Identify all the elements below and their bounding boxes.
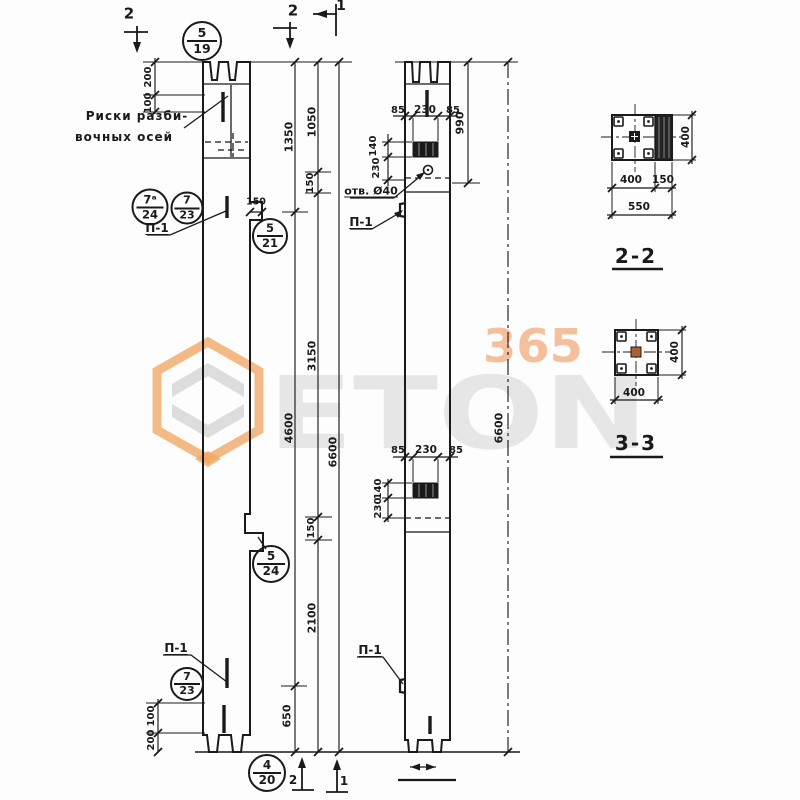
dim-230-bot: 230 <box>415 445 437 456</box>
sec22-dim-150: 150 <box>652 175 674 186</box>
hole-40-center <box>427 169 429 171</box>
dim-200-bottom: 200 <box>147 730 157 751</box>
dim-100-bottom: 100 <box>147 706 157 727</box>
p1-bot-mid-leader <box>357 657 403 684</box>
cut-label-2-bottom: 2 <box>289 774 297 786</box>
feet-dim-arrow-left <box>411 764 421 771</box>
dim-150-upper: 150 <box>306 173 316 194</box>
dim-140-bot: 140 <box>374 479 384 500</box>
cut-arrow-up-1 <box>298 757 306 768</box>
watermark-hexagon <box>157 342 259 459</box>
sec33-dim-400-v: 400 <box>670 341 681 363</box>
callout-7a-24-num: 7ᵃ <box>136 193 164 208</box>
dim-6600-left: 6600 <box>328 437 339 468</box>
dim-3150: 3150 <box>307 341 318 372</box>
cut-label-2-top-mid: 2 <box>288 4 298 19</box>
cut-label-2-top-left: 2 <box>124 7 134 22</box>
dim-650: 650 <box>282 705 293 728</box>
cut-arrow-down-2 <box>286 38 294 49</box>
callout-7a-24-sheet: 24 <box>134 208 167 221</box>
dim-200-top: 200 <box>144 67 154 88</box>
dim-150-step: 150 <box>246 197 266 207</box>
callout-5-19-num: 5 <box>187 26 217 42</box>
sec22-dim-400-v: 400 <box>681 126 692 148</box>
sec22-dim-400-h: 400 <box>620 175 642 186</box>
feet-dim-arrow-right <box>426 764 436 771</box>
dim-230-top: 230 <box>414 105 436 116</box>
axis-note-line1: Риски разби- <box>86 110 188 122</box>
callout-7-23-top: 7 23 <box>171 192 204 225</box>
cut-label-1-bottom: 1 <box>340 775 348 787</box>
callout-7a-24: 7ᵃ 24 <box>132 189 169 226</box>
axis-note-line2: вочных осей <box>75 131 173 143</box>
watermark-logo-glyph2 <box>172 404 244 438</box>
callout-7-23-top-num: 7 <box>175 195 199 209</box>
callout-5-19: 5 19 <box>182 21 222 61</box>
callout-7-23-top-sheet: 23 <box>173 209 202 221</box>
p1-label-bot-mid: П-1 <box>358 644 381 656</box>
cut-label-1-top-right: 1 <box>336 0 346 13</box>
dim-4600: 4600 <box>284 413 295 444</box>
left-column-inner-lines <box>203 84 250 158</box>
sec33-title: 3-3 <box>615 433 657 453</box>
callout-5-21-num: 5 <box>257 222 284 237</box>
technical-drawing-column-sheet: ETON 365 <box>0 0 800 800</box>
p1-label-top-mid: П-1 <box>349 216 372 228</box>
dim-100-top: 100 <box>144 93 154 114</box>
callout-7-23-bottom-sheet: 23 <box>172 685 202 697</box>
dim-85-top-left: 85 <box>391 106 405 116</box>
callout-5-24-num: 5 <box>257 550 286 565</box>
left-column-hidden-lines <box>205 133 248 157</box>
callout-7-23-bottom: 7 23 <box>170 667 204 701</box>
callout-5-21-sheet: 21 <box>254 237 286 250</box>
dim-85-bot-right: 85 <box>449 446 463 456</box>
callout-4-20: 4 20 <box>248 754 286 792</box>
callout-5-19-sheet: 19 <box>184 42 220 56</box>
dim-85-bot-left: 85 <box>391 446 405 456</box>
callout-4-20-num: 4 <box>253 759 282 774</box>
section-3-3-core <box>631 347 641 357</box>
dim-230-top-v: 230 <box>372 158 382 179</box>
callout-5-24-sheet: 24 <box>254 565 288 578</box>
sec22-title: 2-2 <box>615 246 657 266</box>
dim-150-lower: 150 <box>307 518 317 539</box>
cut-arrow-up-2 <box>333 759 341 770</box>
dim-140-top: 140 <box>369 136 379 157</box>
p1-label-bot-left: П-1 <box>164 642 187 654</box>
callout-4-20-sheet: 20 <box>250 774 284 787</box>
dim-2100: 2100 <box>307 603 318 634</box>
watermark-logo-glyph <box>172 363 244 397</box>
hole-note: отв. Ø40 <box>344 186 398 197</box>
cut-arrow-left <box>315 10 327 18</box>
dim-990: 990 <box>455 112 466 135</box>
callout-7-23-bottom-num: 7 <box>174 671 199 685</box>
left-column-outline <box>203 62 263 752</box>
sec33-dim-400-h: 400 <box>623 388 645 399</box>
cut-arrow-down-1 <box>133 42 141 53</box>
dim-1350: 1350 <box>284 122 295 153</box>
left-column-view <box>203 62 263 752</box>
sec22-dim-550: 550 <box>628 202 650 213</box>
dim-230-bot-v: 230 <box>374 498 384 519</box>
dim-1050: 1050 <box>307 107 318 138</box>
callout-5-24: 5 24 <box>252 545 290 583</box>
callout-5-21: 5 21 <box>252 218 288 254</box>
dim-6600-right: 6600 <box>494 413 505 444</box>
watermark-digits: 365 <box>483 319 583 373</box>
